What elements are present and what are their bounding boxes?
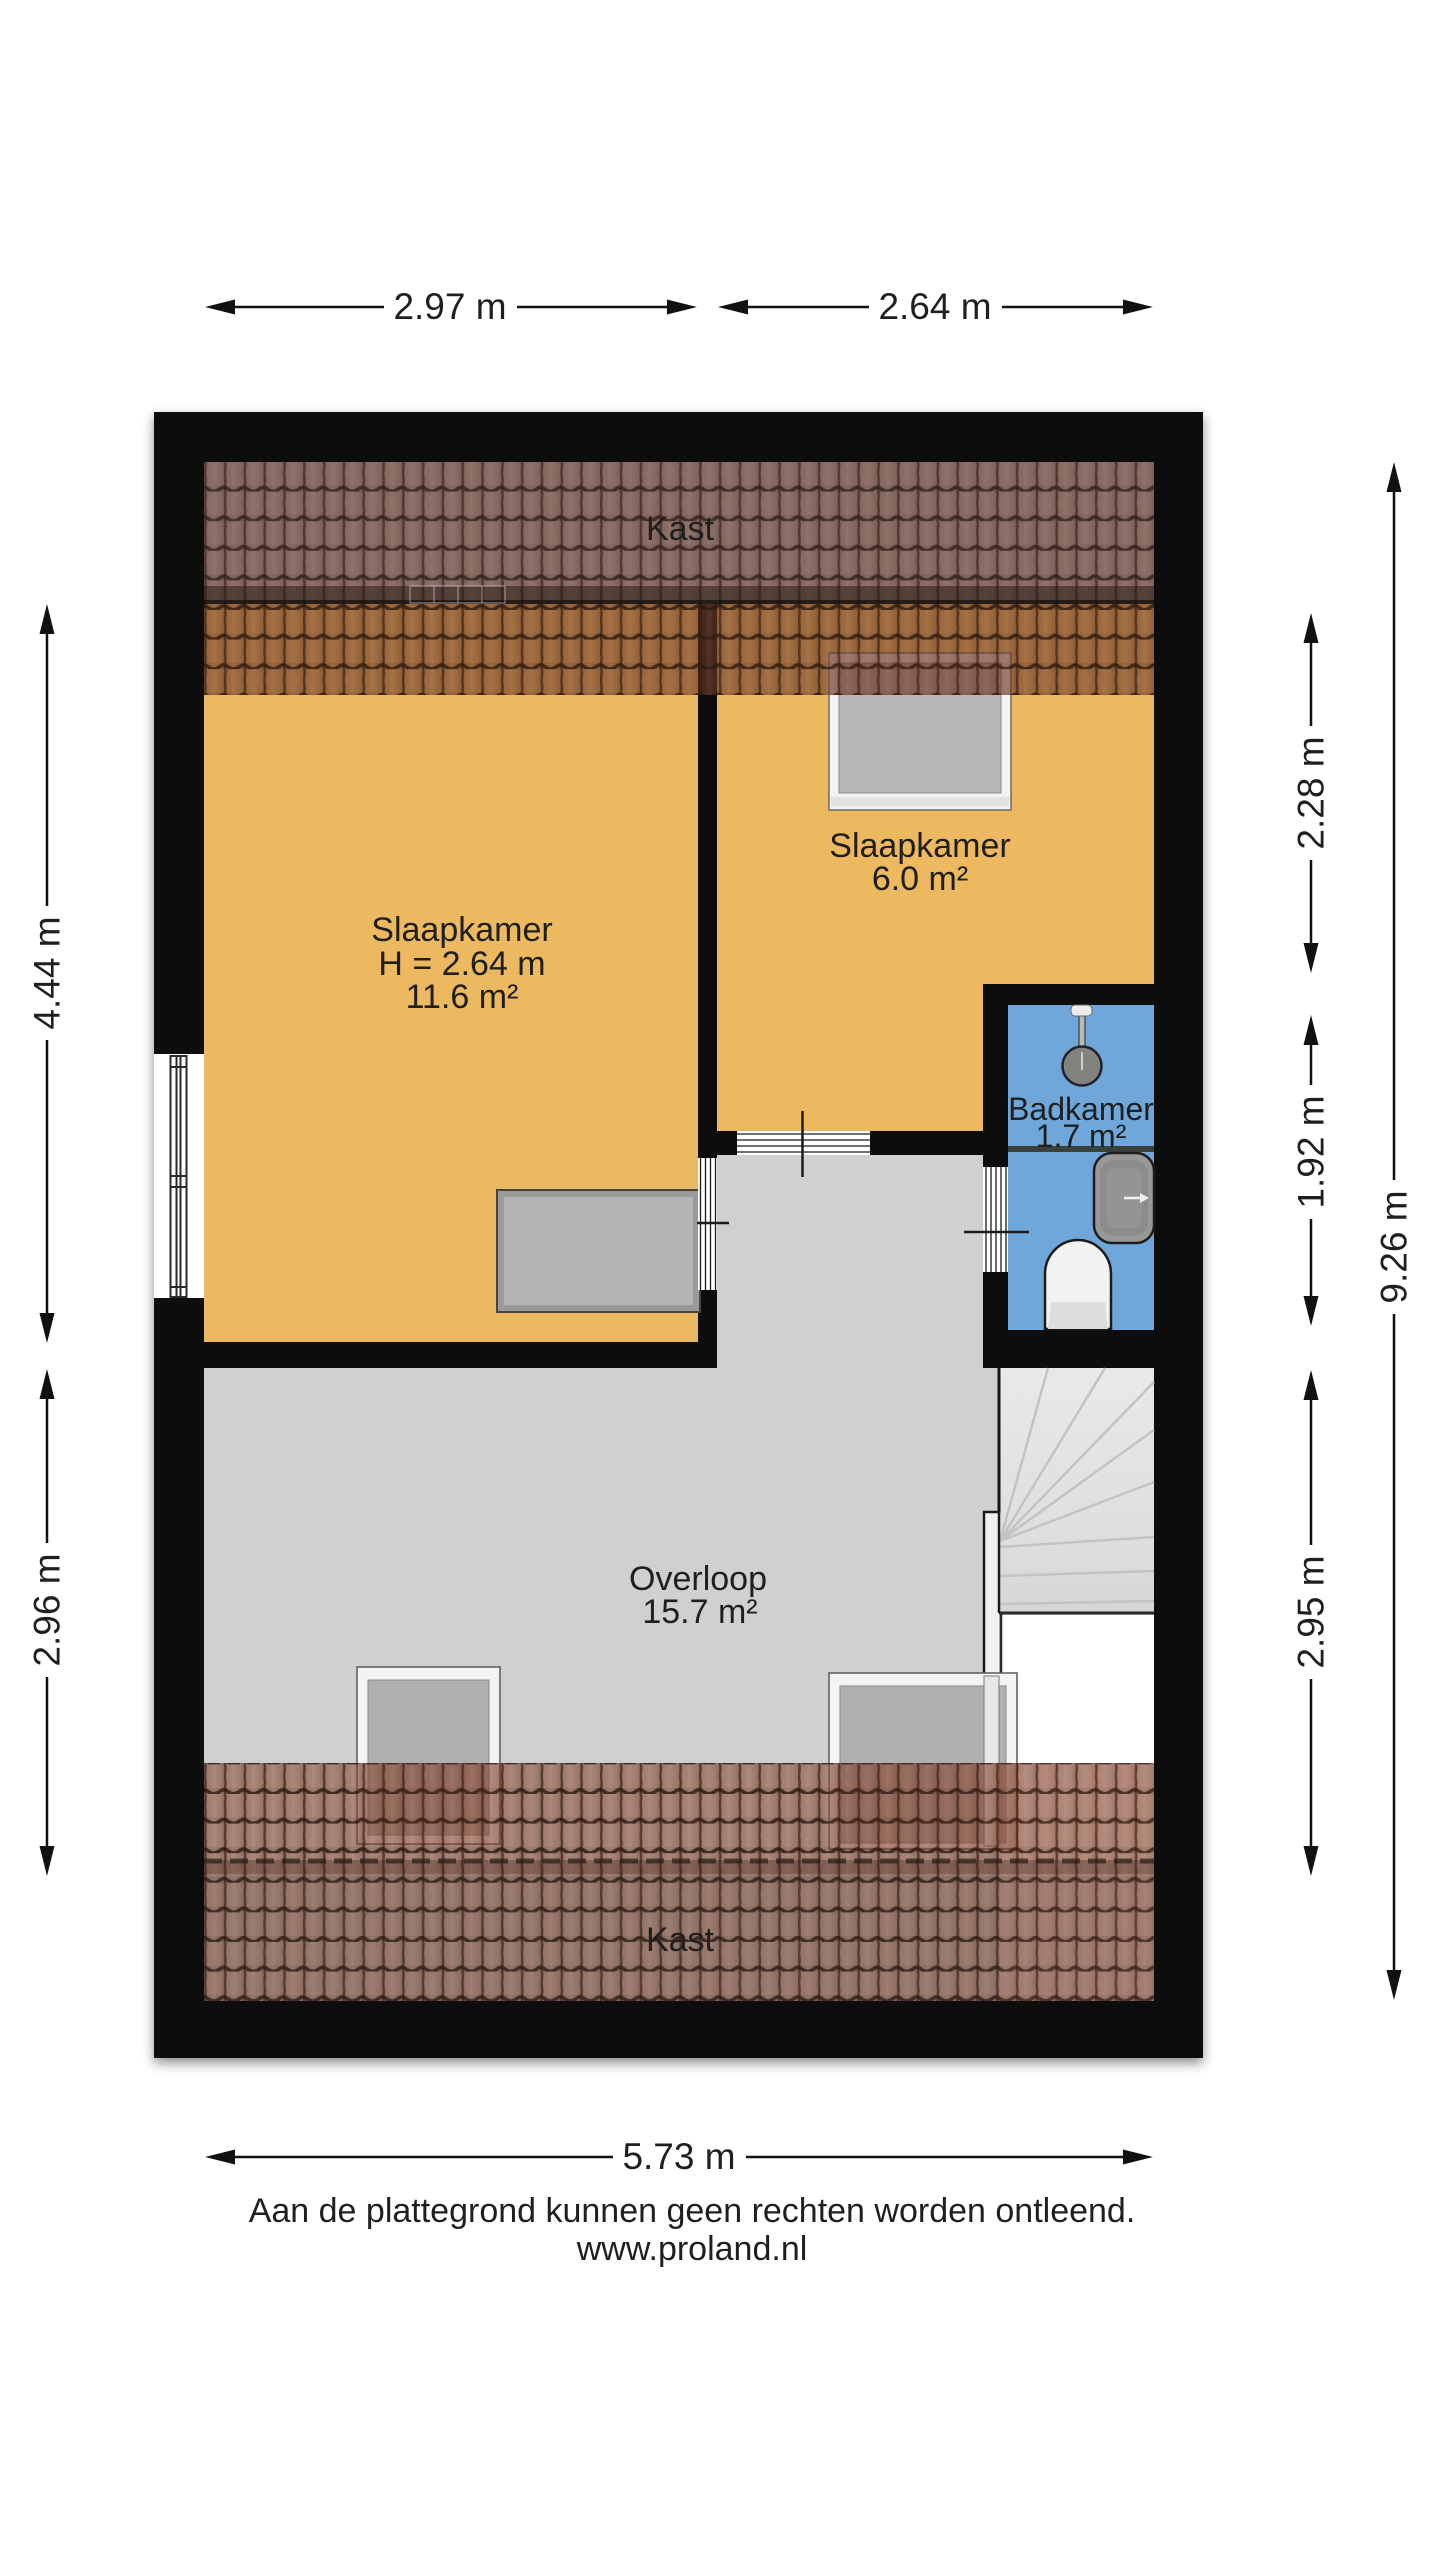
svg-text:2.95 m: 2.95 m <box>1291 1555 1332 1668</box>
svg-text:Kast: Kast <box>646 1921 715 1959</box>
svg-text:5.73 m: 5.73 m <box>622 2136 735 2177</box>
svg-text:11.6 m²: 11.6 m² <box>406 978 519 1016</box>
svg-text:2.64 m: 2.64 m <box>878 286 991 327</box>
svg-text:2.28 m: 2.28 m <box>1291 736 1332 849</box>
svg-text:1.92 m: 1.92 m <box>1291 1095 1332 1208</box>
svg-text:1.7 m²: 1.7 m² <box>1036 1118 1127 1154</box>
svg-text:Kast: Kast <box>646 510 715 548</box>
svg-text:Aan de plattegrond kunnen geen: Aan de plattegrond kunnen geen rechten w… <box>249 2192 1136 2230</box>
svg-text:9.26 m: 9.26 m <box>1374 1190 1415 1303</box>
svg-text:www.proland.nl: www.proland.nl <box>576 2230 808 2268</box>
svg-text:6.0 m²: 6.0 m² <box>872 860 968 898</box>
svg-text:2.97 m: 2.97 m <box>393 286 506 327</box>
svg-text:4.44 m: 4.44 m <box>27 916 68 1029</box>
svg-text:15.7 m²: 15.7 m² <box>642 1593 757 1631</box>
svg-text:2.96 m: 2.96 m <box>27 1553 68 1666</box>
svg-text:Slaapkamer: Slaapkamer <box>371 911 552 949</box>
